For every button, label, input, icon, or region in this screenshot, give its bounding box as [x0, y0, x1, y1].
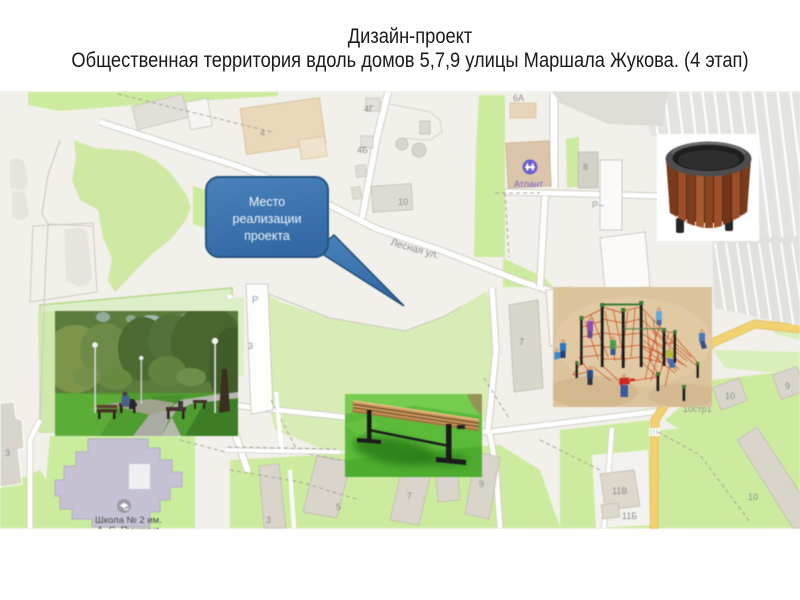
svg-text:11В: 11В	[612, 486, 627, 496]
svg-text:7: 7	[519, 337, 524, 347]
svg-text:11Б: 11Б	[622, 511, 637, 521]
svg-text:проекта: проекта	[244, 229, 290, 243]
svg-text:3: 3	[5, 448, 10, 458]
svg-text:10: 10	[725, 391, 735, 401]
svg-text:9: 9	[479, 479, 484, 489]
svg-text:Р: Р	[592, 200, 598, 210]
svg-text:Место: Место	[249, 195, 285, 209]
svg-text:4Г: 4Г	[364, 104, 374, 114]
svg-text:10: 10	[748, 492, 758, 502]
svg-text:3: 3	[248, 341, 253, 351]
svg-text:А. С. Пушкина: А. С. Пушкина	[97, 525, 161, 529]
svg-text:7: 7	[407, 491, 412, 501]
svg-text:3: 3	[266, 515, 271, 525]
svg-text:реализации: реализации	[233, 212, 302, 226]
svg-text:9: 9	[785, 381, 790, 391]
svg-text:Р: Р	[252, 295, 259, 306]
svg-text:6А: 6А	[513, 93, 524, 103]
svg-text:5: 5	[336, 502, 341, 512]
svg-text:10: 10	[398, 197, 408, 207]
svg-text:8: 8	[583, 162, 588, 172]
svg-text:4Б: 4Б	[357, 145, 368, 155]
svg-text:Атлант: Атлант	[514, 179, 543, 189]
